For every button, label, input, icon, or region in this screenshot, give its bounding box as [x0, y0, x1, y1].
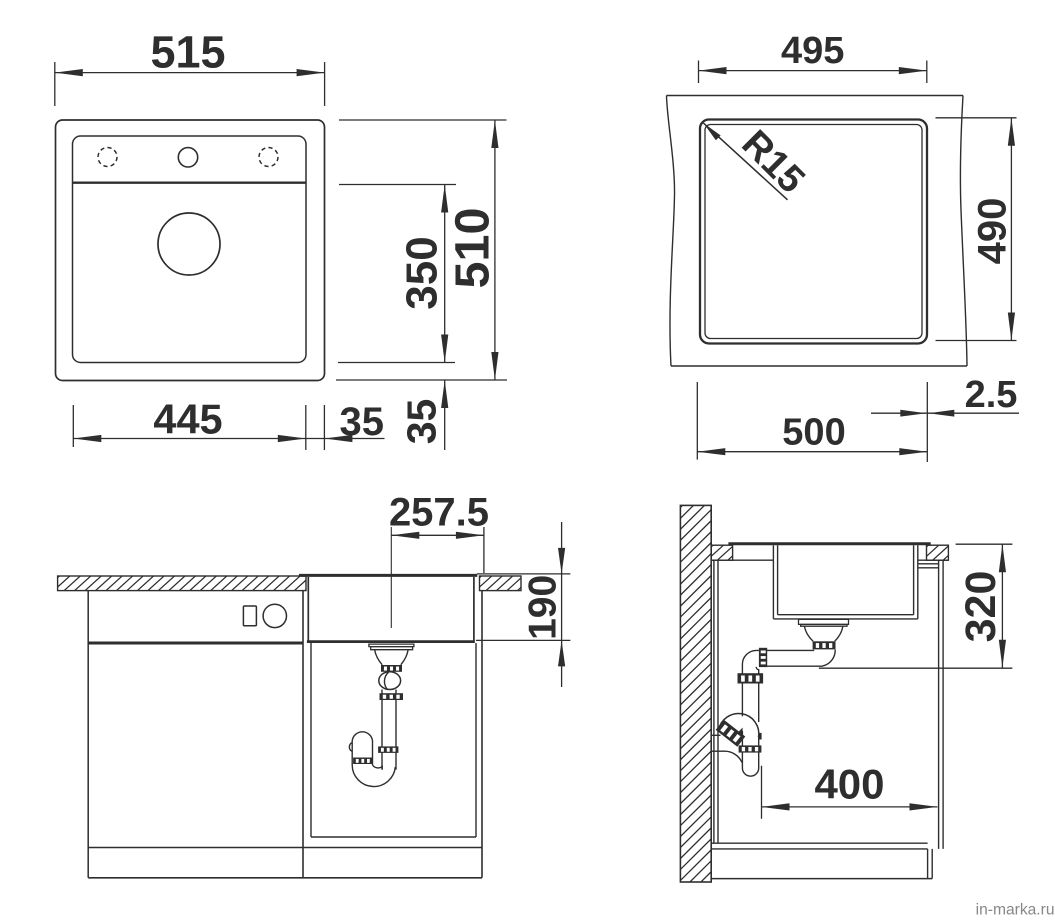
svg-text:445: 445	[153, 396, 222, 443]
svg-text:495: 495	[781, 30, 844, 72]
svg-text:257.5: 257.5	[389, 490, 489, 534]
svg-text:in-marka.ru: in-marka.ru	[976, 902, 1055, 919]
svg-text:320: 320	[957, 571, 1005, 643]
svg-text:490: 490	[970, 198, 1014, 265]
svg-text:500: 500	[782, 411, 845, 453]
svg-text:35: 35	[340, 400, 385, 444]
svg-text:2.5: 2.5	[965, 374, 1018, 416]
svg-text:R15: R15	[733, 123, 812, 202]
svg-text:190: 190	[522, 575, 565, 640]
svg-text:35: 35	[398, 399, 444, 445]
svg-text:515: 515	[150, 26, 225, 77]
svg-text:350: 350	[398, 236, 447, 309]
svg-text:400: 400	[814, 760, 884, 807]
svg-text:510: 510	[446, 208, 500, 289]
